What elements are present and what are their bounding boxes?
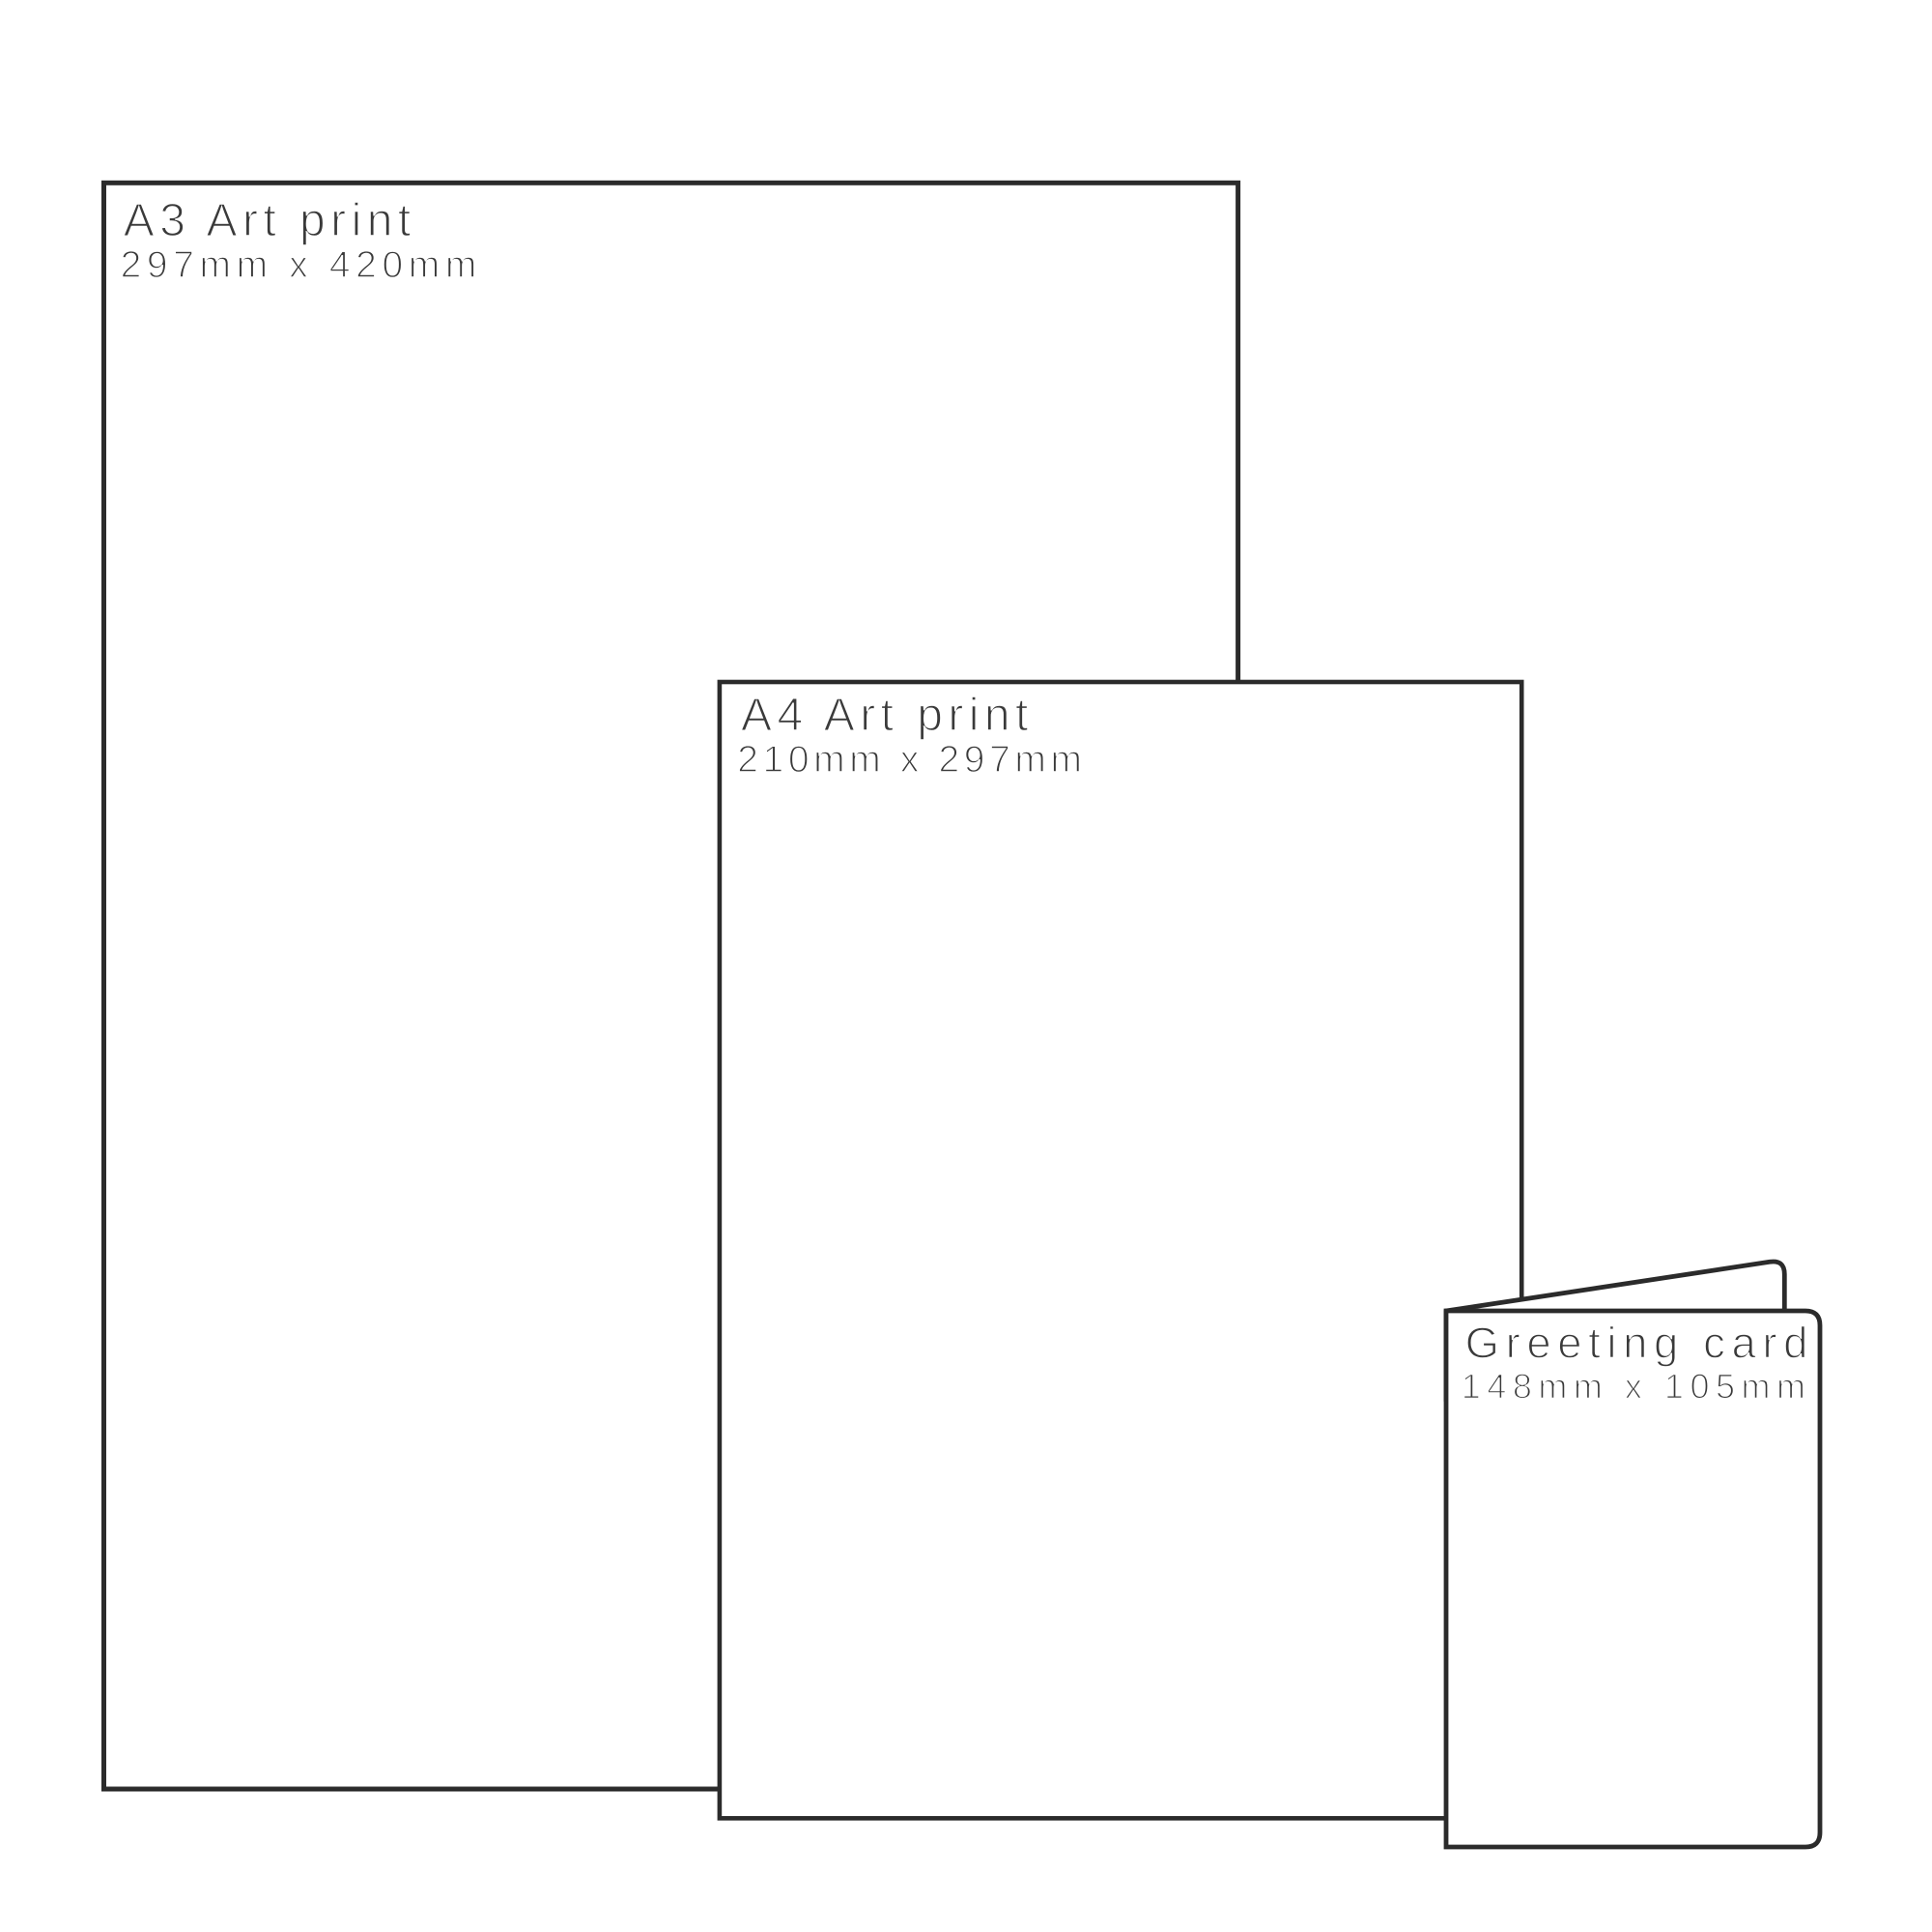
svg-text:148mm x 105mm: 148mm x 105mm [1462,1366,1812,1406]
svg-text:A4 Art print: A4 Art print [741,690,1034,741]
svg-text:A3 Art print: A3 Art print [124,195,416,246]
svg-text:Greeting card: Greeting card [1465,1319,1814,1368]
svg-text:297mm x 420mm: 297mm x 420mm [121,244,482,286]
svg-text:210mm x 297mm: 210mm x 297mm [737,739,1086,781]
